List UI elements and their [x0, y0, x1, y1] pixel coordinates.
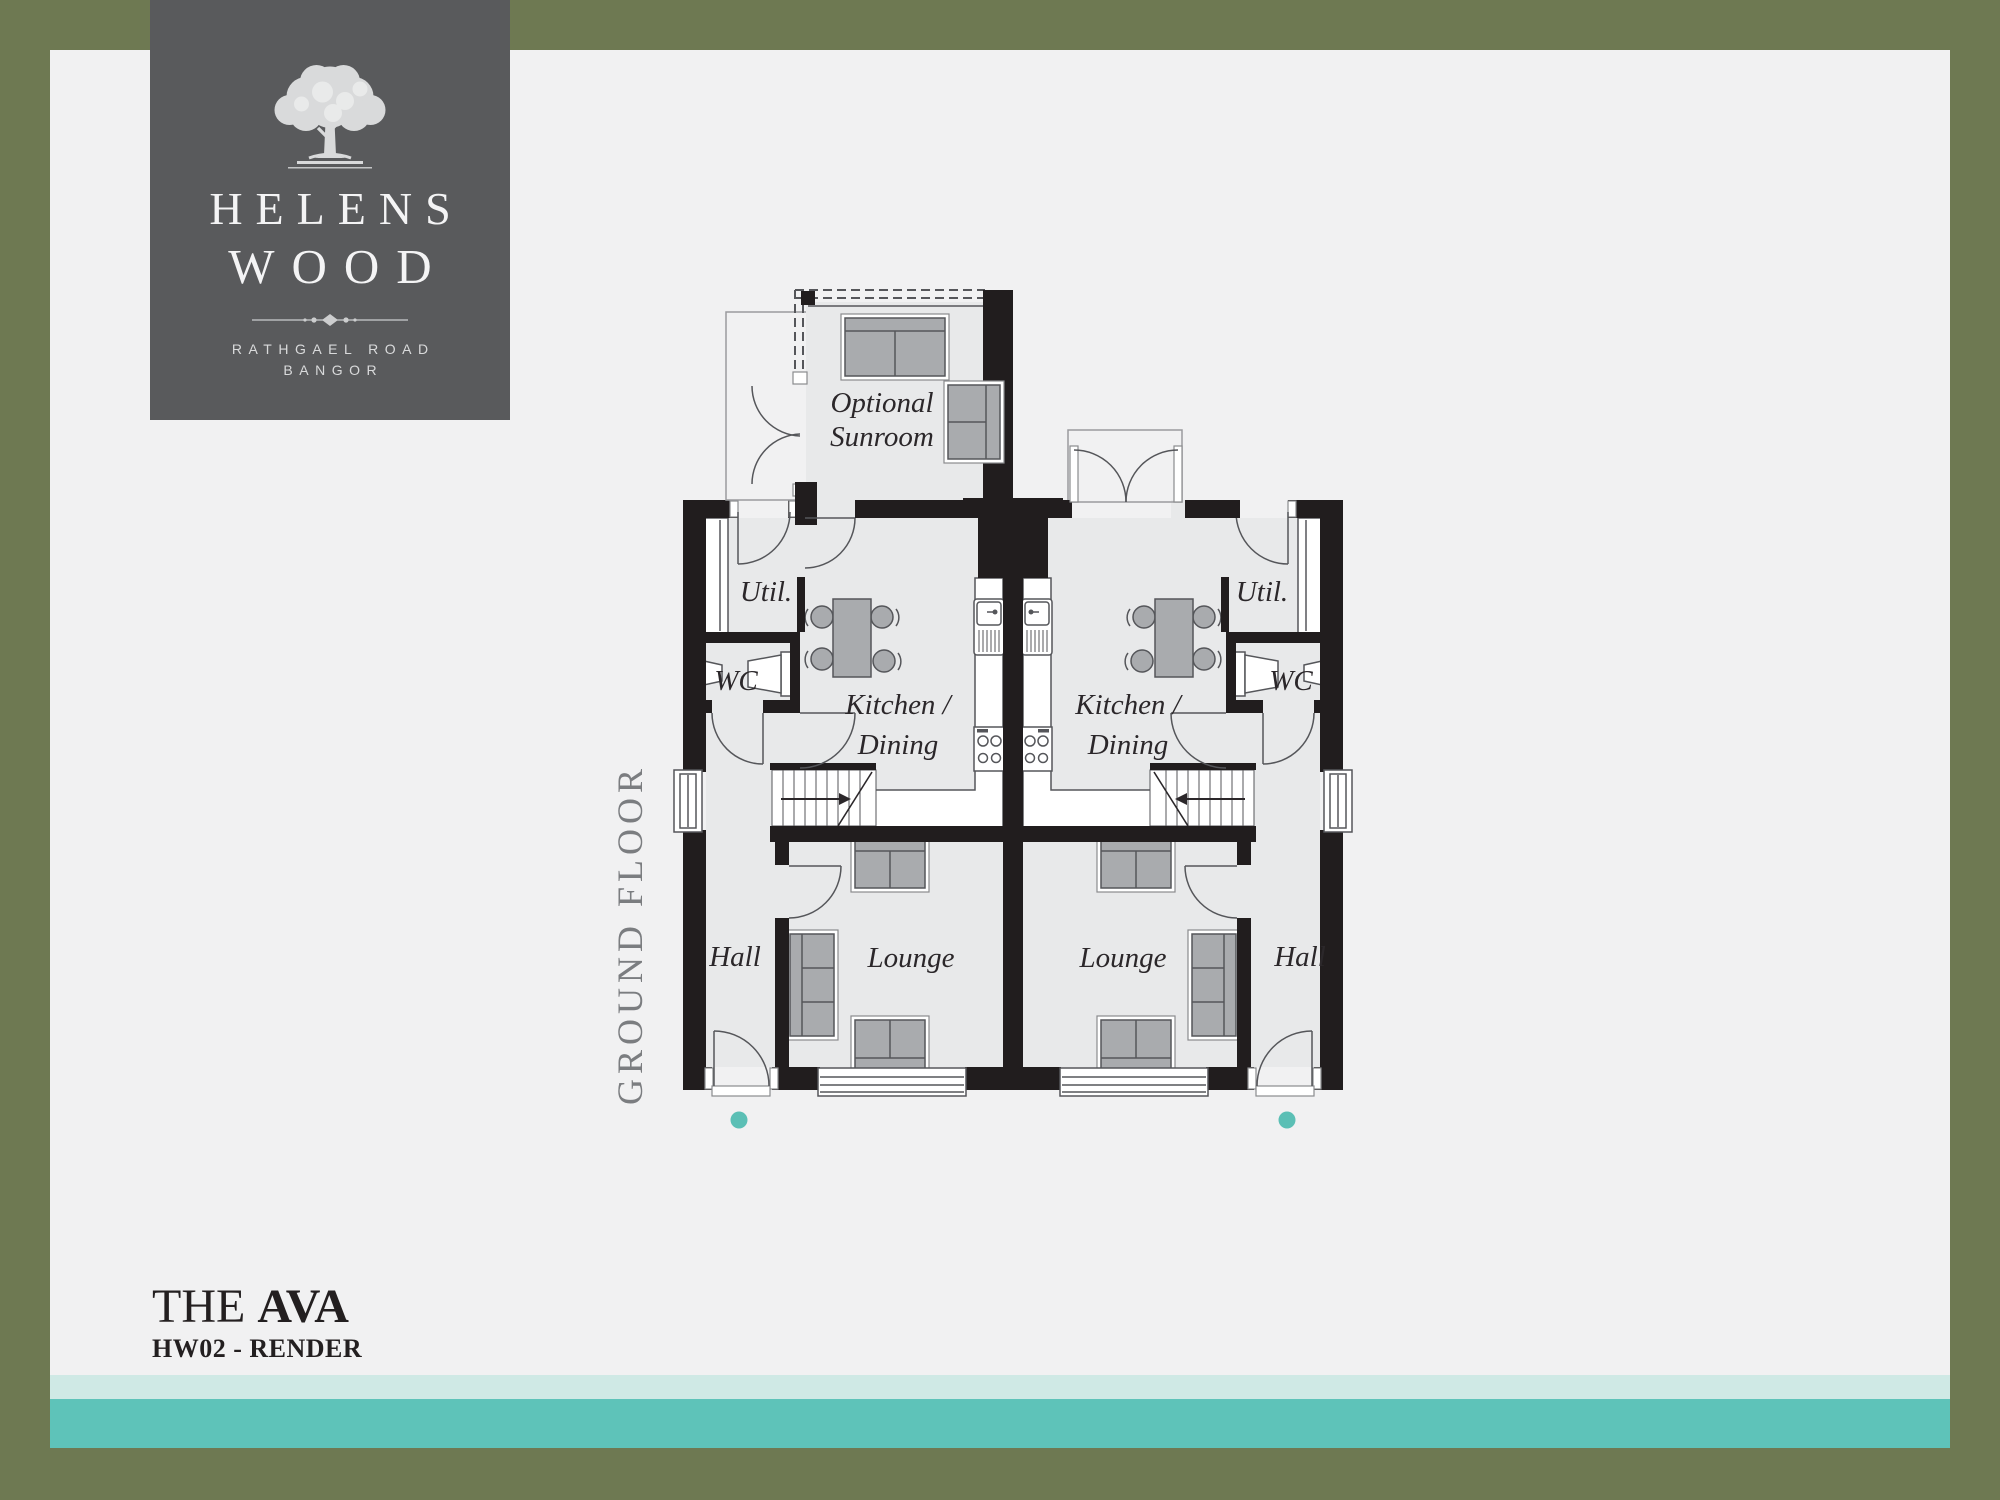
house-type-title-block: THE AVA HW02 - RENDER [152, 1282, 362, 1364]
label-util-left: Util. [740, 576, 792, 608]
rear-french-doors [1070, 446, 1182, 502]
unit-right [1003, 430, 1352, 1129]
logo-name-line1: HELENS [150, 182, 510, 235]
label-wc-right: WC [1269, 665, 1313, 697]
label-lounge-right: Lounge [1079, 942, 1167, 974]
logo-address-line2: BANGOR [150, 362, 510, 378]
sunroom-french-doors [752, 372, 807, 496]
sunroom-armchair [944, 381, 1004, 463]
label-sunroom-line1: Optional [830, 387, 933, 419]
label-hall-right: Hall [1273, 941, 1326, 973]
logo-name-line2: WOOD [150, 238, 510, 295]
label-kitchen-left-line1: Kitchen / [844, 689, 953, 721]
label-kitchen-right-line1: Kitchen / [1074, 689, 1183, 721]
house-type-name: THE AVA [152, 1282, 362, 1332]
tree-icon [255, 58, 405, 180]
footer-stripe-teal [50, 1399, 1950, 1448]
footer-stripe-light [50, 1375, 1950, 1399]
brochure-page: HELENS WOOD RATHGAEL ROAD BANGOR GROUND … [0, 0, 2000, 1500]
logo-panel: HELENS WOOD RATHGAEL ROAD BANGOR [150, 0, 510, 420]
sunroom-sofa [841, 314, 949, 380]
label-wc-left: WC [714, 665, 758, 697]
label-sunroom-line2: Sunroom [830, 421, 934, 453]
label-util-right: Util. [1236, 576, 1288, 608]
house-type-code: HW02 - RENDER [152, 1334, 362, 1364]
label-lounge-left: Lounge [867, 942, 955, 974]
logo-divider-ornament [250, 312, 410, 328]
label-kitchen-right-line2: Dining [1087, 729, 1169, 761]
label-hall-left: Hall [708, 941, 761, 973]
patio-outline [726, 312, 810, 500]
logo-address-line1: RATHGAEL ROAD [150, 341, 510, 357]
ground-floor-plan: Optional Sunroom Util. WC Kitchen / Dini… [640, 260, 1420, 1140]
label-kitchen-left-line2: Dining [857, 729, 939, 761]
